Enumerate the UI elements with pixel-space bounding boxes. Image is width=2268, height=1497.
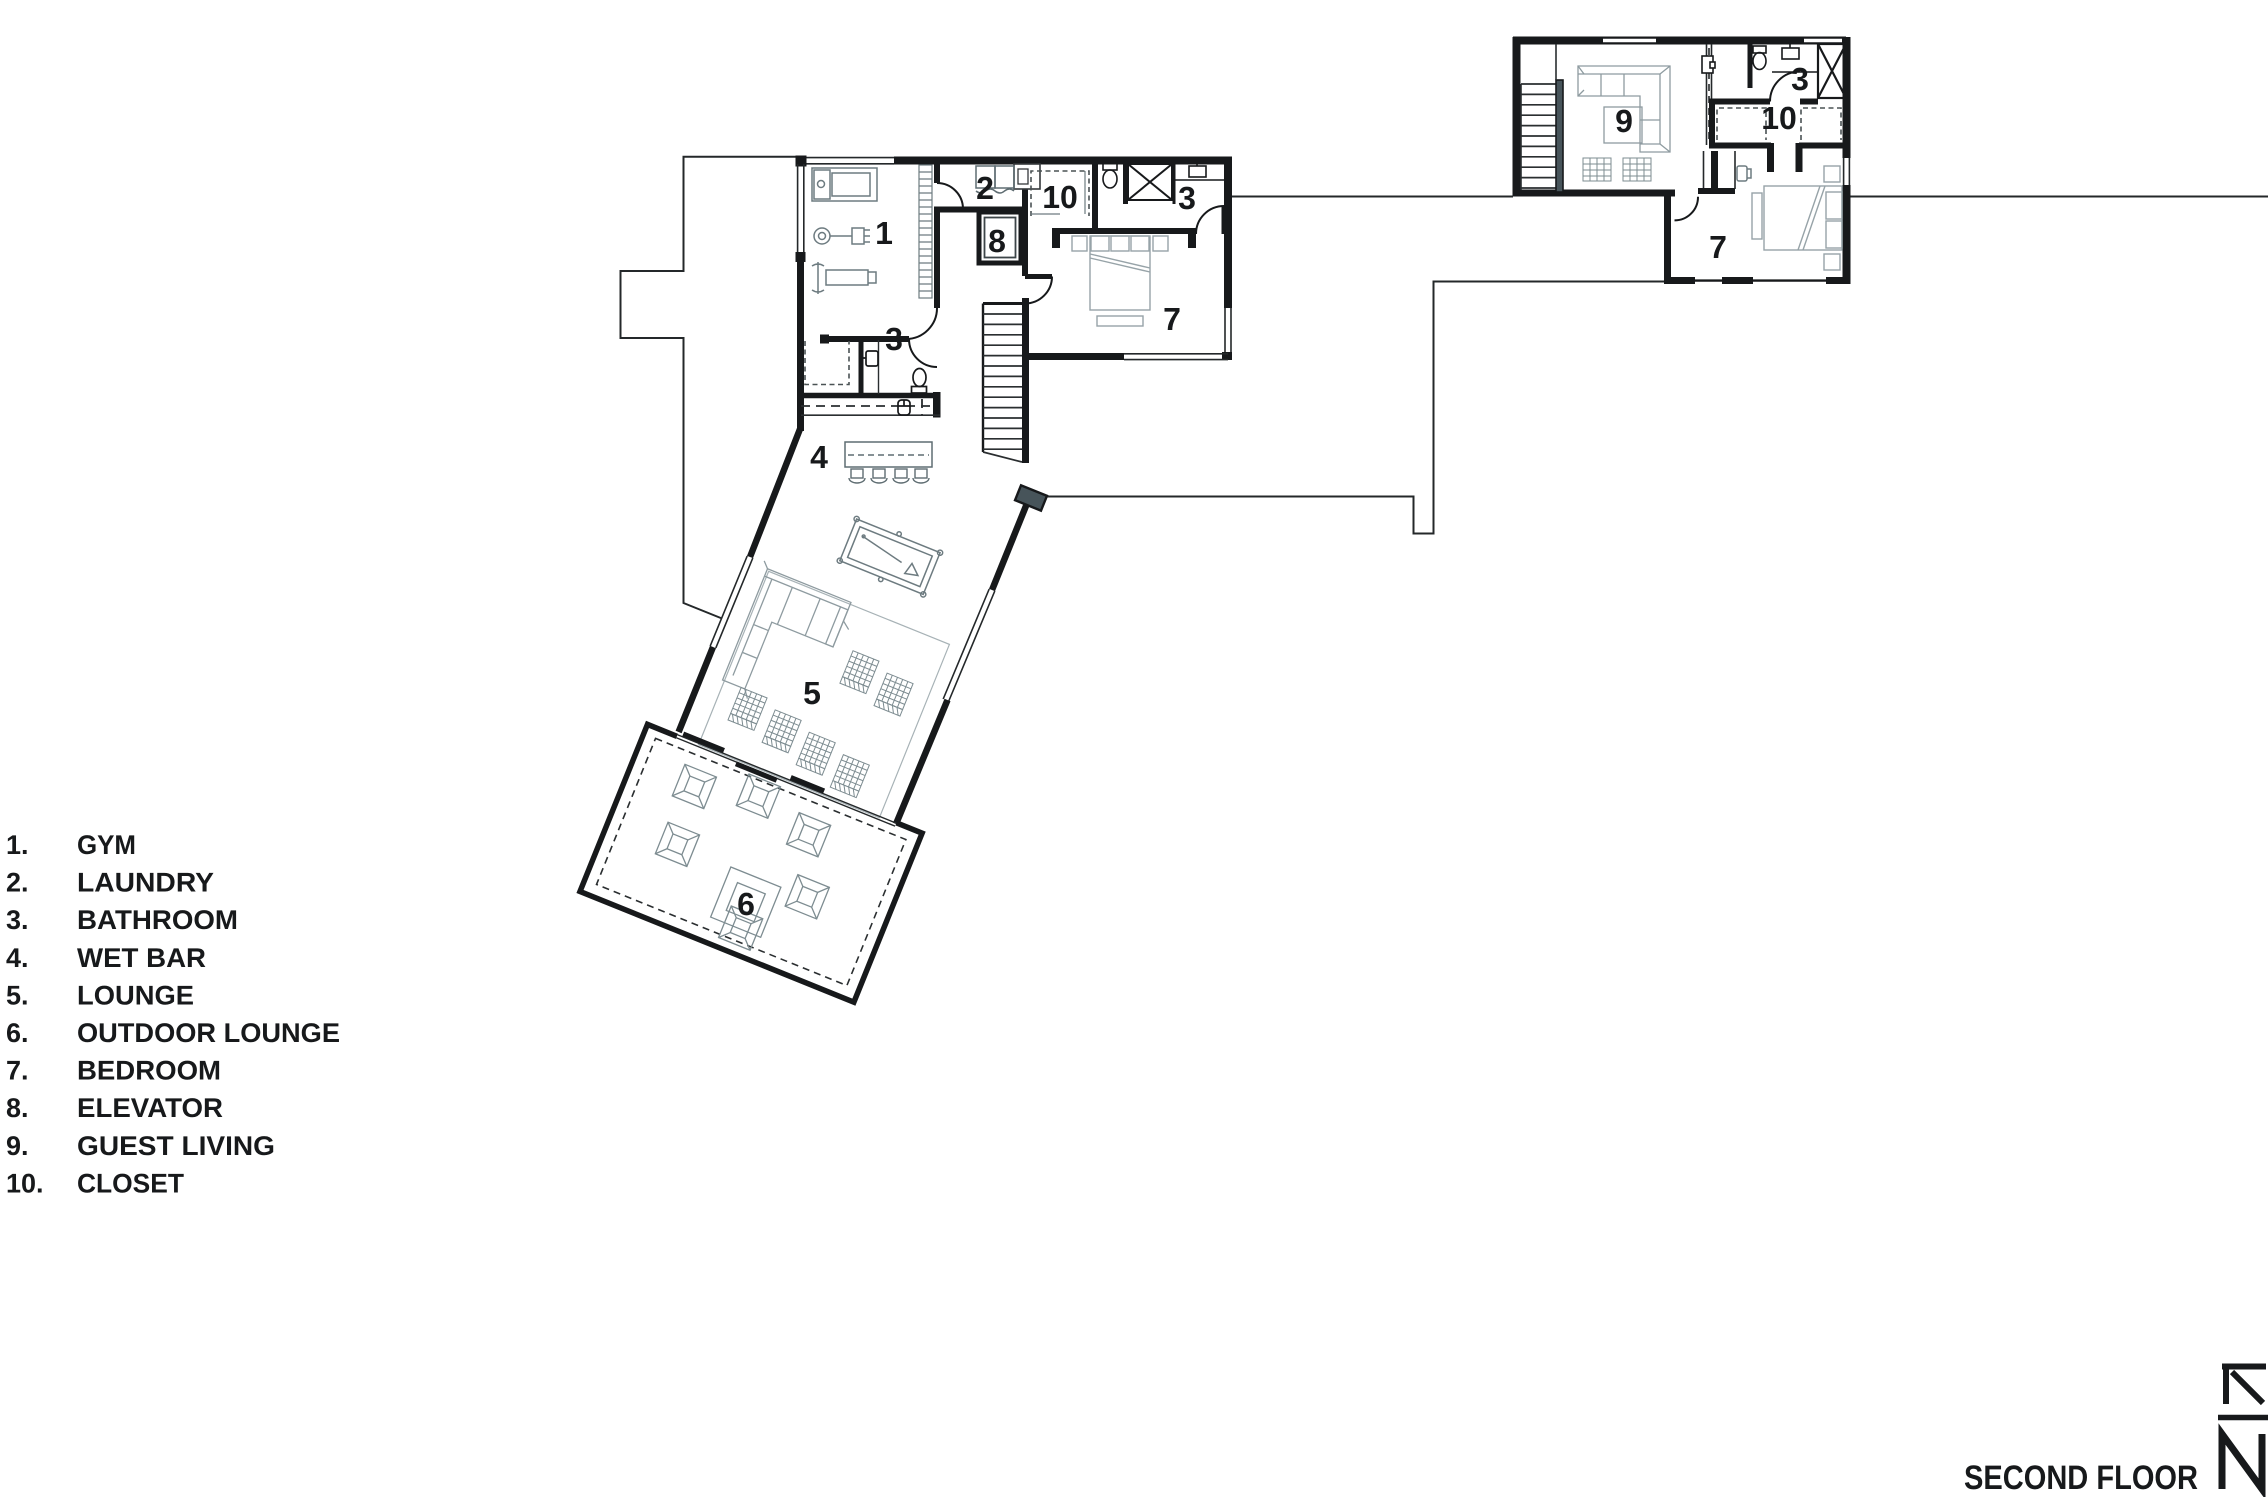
svg-text:7: 7	[1163, 301, 1181, 337]
svg-text:4: 4	[810, 439, 828, 475]
svg-text:7.: 7.	[6, 1056, 29, 1086]
svg-text:6.: 6.	[6, 1018, 29, 1048]
svg-text:3: 3	[1791, 61, 1809, 97]
svg-text:4.: 4.	[6, 943, 29, 973]
svg-text:2: 2	[976, 170, 994, 206]
svg-text:10: 10	[1042, 179, 1078, 215]
svg-text:9.: 9.	[6, 1131, 29, 1161]
svg-text:3.: 3.	[6, 905, 29, 935]
svg-text:8.: 8.	[6, 1093, 29, 1123]
svg-text:WET BAR: WET BAR	[77, 943, 206, 973]
svg-text:6: 6	[737, 886, 755, 922]
svg-text:1: 1	[875, 215, 893, 251]
svg-text:5: 5	[803, 675, 821, 711]
svg-text:10.: 10.	[6, 1168, 44, 1198]
svg-text:9: 9	[1615, 103, 1633, 139]
svg-text:SECOND FLOOR: SECOND FLOOR	[1964, 1459, 2198, 1497]
svg-text:LAUNDRY: LAUNDRY	[77, 868, 214, 898]
svg-text:LOUNGE: LOUNGE	[77, 980, 194, 1010]
svg-text:7: 7	[1709, 229, 1727, 265]
svg-text:1.: 1.	[6, 830, 29, 860]
svg-text:5.: 5.	[6, 980, 29, 1010]
svg-text:OUTDOOR LOUNGE: OUTDOOR LOUNGE	[77, 1018, 340, 1048]
svg-text:2.: 2.	[6, 868, 29, 898]
svg-text:BEDROOM: BEDROOM	[77, 1056, 221, 1086]
svg-text:GUEST LIVING: GUEST LIVING	[77, 1131, 275, 1161]
svg-text:10: 10	[1761, 100, 1797, 136]
svg-text:GYM: GYM	[77, 830, 136, 860]
svg-text:ELEVATOR: ELEVATOR	[77, 1093, 223, 1123]
svg-text:3: 3	[1178, 180, 1196, 216]
svg-text:8: 8	[988, 223, 1006, 259]
svg-text:CLOSET: CLOSET	[77, 1168, 184, 1198]
svg-text:BATHROOM: BATHROOM	[77, 905, 238, 935]
svg-text:3: 3	[885, 321, 903, 357]
